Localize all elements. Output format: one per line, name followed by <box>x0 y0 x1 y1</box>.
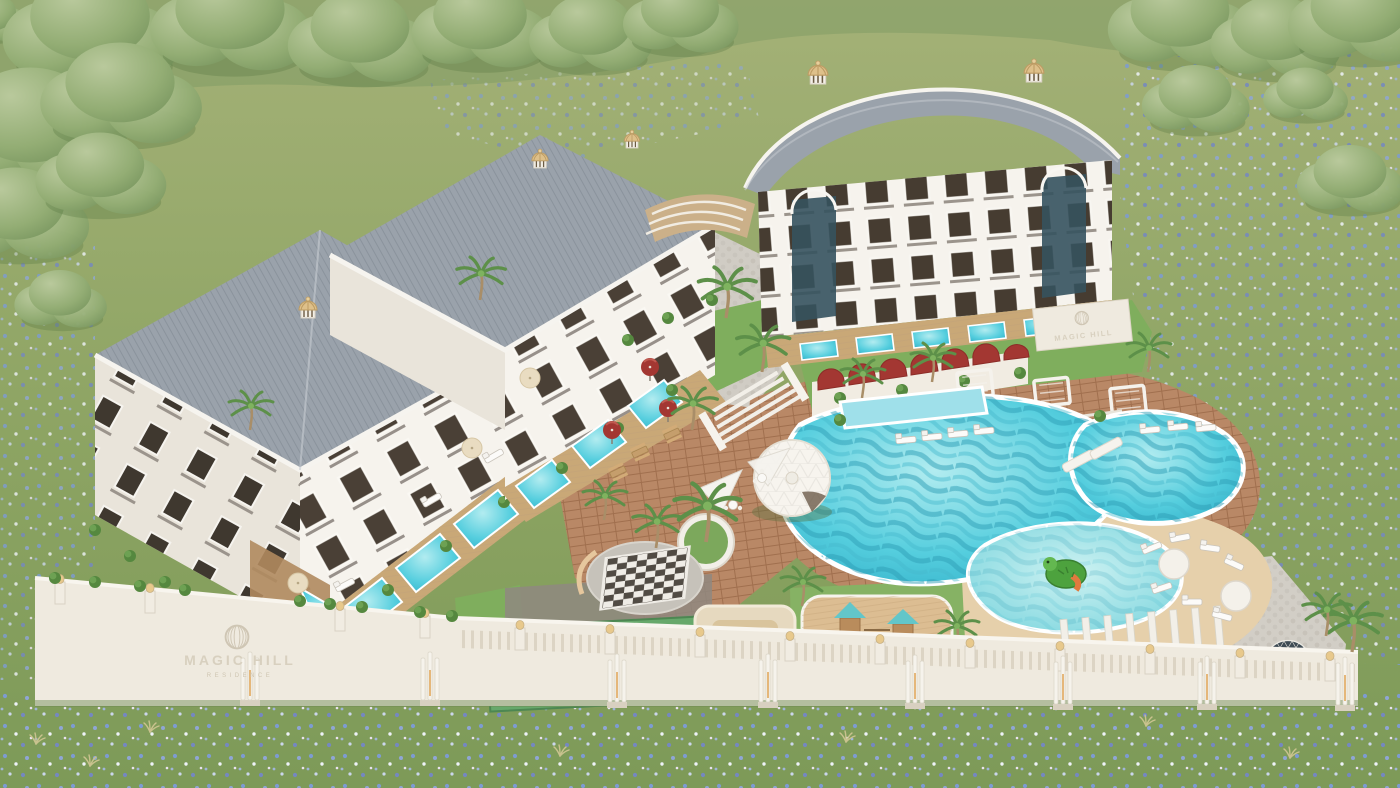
gate-logo-subtitle: RESIDENCE <box>207 673 274 679</box>
gate-logo-title: MAGIC HILL <box>184 652 296 668</box>
render-canvas: MAGIC HILL <box>0 0 1400 788</box>
parasol <box>1221 581 1251 611</box>
scene: MAGIC HILL <box>0 0 1400 788</box>
parasol <box>1159 549 1189 579</box>
